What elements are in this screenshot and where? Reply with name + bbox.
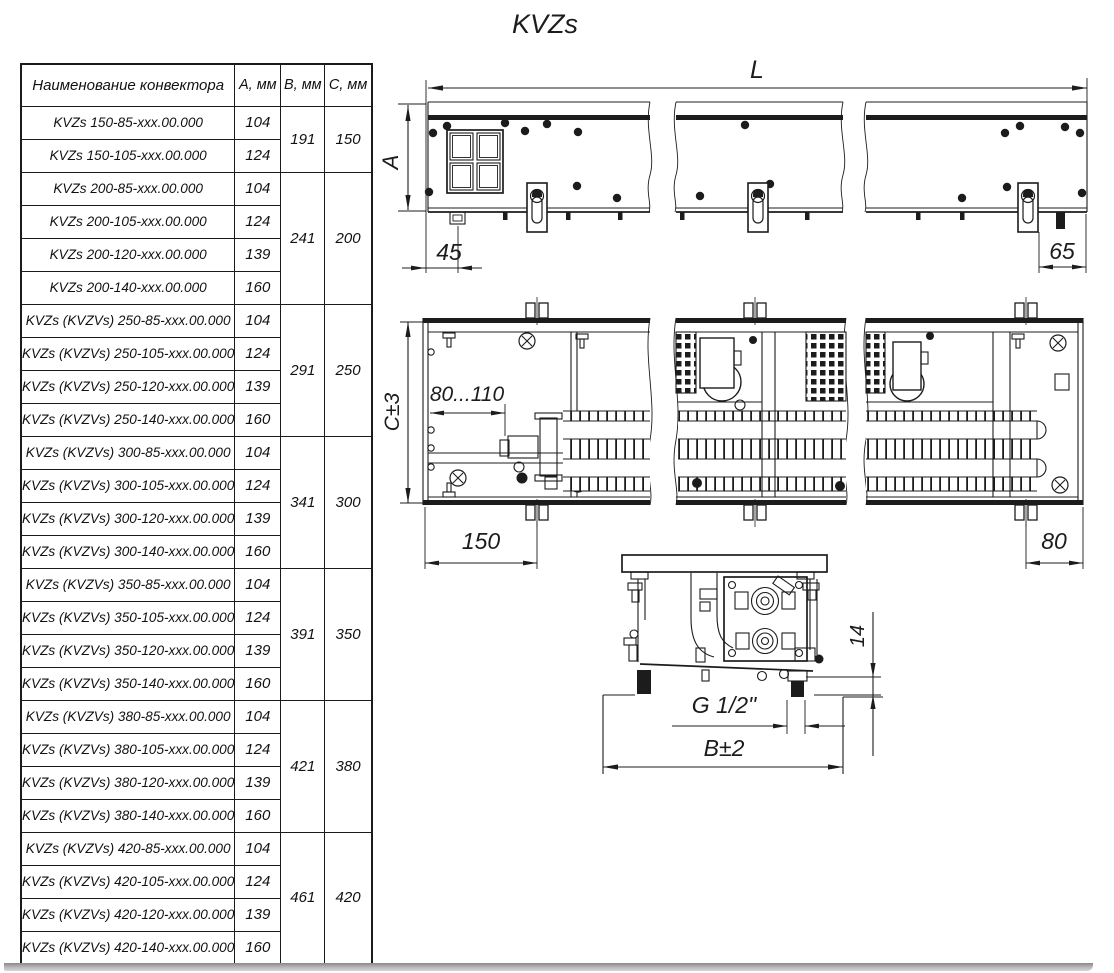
dim-65-label: 65 [1049,238,1075,264]
dim-80-110-label: 80...110 [430,383,505,406]
dim-C3: C±3 [381,322,423,503]
dim-G12: G 1/2" [672,692,845,734]
air-duct [691,573,733,662]
dim-A: A [378,104,426,211]
heat-exchanger-fins [563,411,1046,491]
dim-B2-label: B±2 [704,735,745,761]
dim-G12-label: G 1/2" [692,692,758,718]
dim-C3-label: C±3 [381,392,404,431]
dim-45: 45 [402,226,482,273]
top-lid [622,555,827,572]
dim-80-label: 80 [1041,528,1067,554]
mounting-bracket [748,183,768,232]
plan-view: C±3 80...110 150 80 [381,297,1083,569]
dim-B2: B±2 [603,735,843,770]
valve-panel [724,576,807,661]
dim-45-label: 45 [436,239,462,265]
page-title: KVZs [512,9,578,39]
technical-drawing: KVZs L A [0,0,1114,973]
drawing-sheet: Наименование конвектора A, мм B, мм C, м… [0,0,1114,973]
pipe-union-upper [735,576,795,615]
pipe-union-lower [736,629,795,654]
dim-150-label: 150 [462,528,501,554]
mounting-bracket [1018,183,1038,232]
dim-L: L [426,56,1087,273]
dim-L-label: L [750,56,764,84]
pipe-stub [791,681,804,697]
side-elevation-view: L A [378,56,1087,273]
dim-A-label: A [378,155,403,172]
mounting-bracket [527,183,547,232]
cross-section-view: 14 G 1/2" B±2 [603,555,883,774]
air-grille-icon [447,130,503,193]
dim-14-label: 14 [847,625,869,647]
dim-80-110: 80...110 [430,383,505,436]
left-foot [637,670,651,694]
page-edge-shadow [4,963,1093,971]
dim-150: 150 [425,507,537,569]
